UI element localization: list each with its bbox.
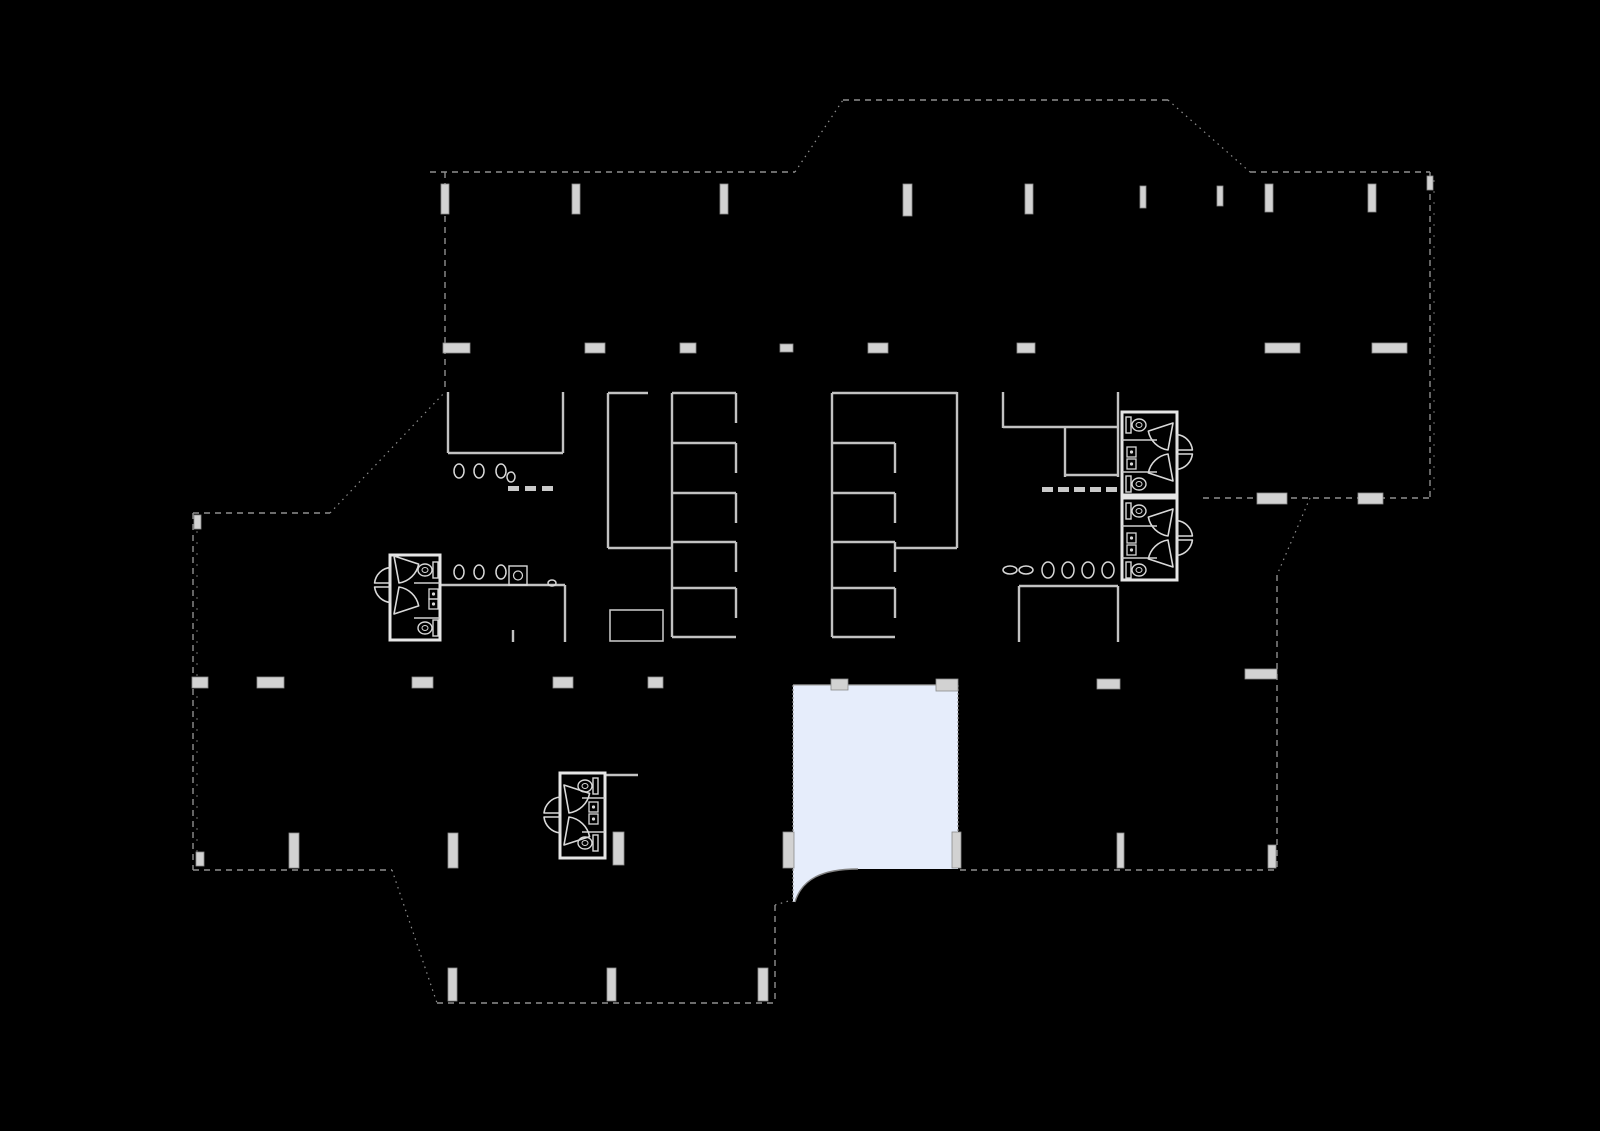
toilet-tank [433, 620, 438, 636]
toilet-bowl [1132, 478, 1146, 490]
toilet-tank [1126, 562, 1131, 578]
toilet-icon [1126, 503, 1146, 519]
urinal-icon [1042, 562, 1054, 578]
counter-dash-mark [1074, 487, 1085, 492]
room-outline [610, 610, 663, 641]
exterior-wall-dotted [1277, 498, 1310, 575]
structural-column [1025, 184, 1033, 214]
urinal-icon [496, 464, 506, 478]
structural-column [572, 184, 580, 214]
door-swing-leaf [375, 568, 390, 583]
counter-dash-mark [1090, 487, 1101, 492]
urinal-icon [1062, 562, 1074, 578]
counter-dash-mark [542, 486, 553, 491]
structural-column [585, 343, 605, 353]
toilet-bowl [1132, 564, 1146, 576]
structural-column [1217, 186, 1223, 206]
structural-column [441, 184, 449, 214]
structural-column [758, 968, 768, 1001]
structural-column [196, 852, 204, 866]
structural-column [257, 677, 284, 688]
bathroom-blocks-layer [390, 412, 1177, 858]
urinal-icon [474, 464, 484, 478]
toilet-bowl [1132, 419, 1146, 431]
counter-dash-mark [1106, 487, 1117, 492]
toilet-tank [593, 835, 598, 851]
urinal-icon [454, 565, 464, 579]
structural-column [1268, 845, 1276, 868]
counter-sink-basin [509, 566, 527, 585]
urinal-icon [496, 565, 506, 579]
exterior-wall-dotted [775, 900, 792, 905]
door-swing-leaf [375, 587, 390, 602]
door-symbols-layer [375, 423, 1193, 845]
double-swing-door-icon [544, 785, 590, 845]
sink-drain [1130, 450, 1133, 453]
toilet-icon [578, 778, 598, 794]
toilet-seat [422, 626, 428, 631]
structural-column [1372, 343, 1407, 353]
structural-column [194, 515, 201, 529]
structural-column [1358, 493, 1383, 504]
structural-column [903, 184, 912, 216]
toilet-seat [582, 841, 588, 846]
toilet-tank [1126, 476, 1131, 492]
structural-column [443, 343, 470, 353]
sink-icon [1127, 545, 1136, 555]
toilet-tank [1126, 417, 1131, 433]
toilet-seat [1136, 568, 1142, 573]
door-swing-leaf [544, 797, 560, 813]
counter-dash-mark [1042, 487, 1053, 492]
exterior-wall-dotted [1168, 100, 1250, 172]
sink-icon [589, 814, 598, 824]
structural-column [1017, 343, 1035, 353]
sink-drain [432, 592, 435, 595]
structural-column [412, 677, 433, 688]
structural-column [1265, 184, 1273, 212]
structural-column [448, 833, 458, 868]
structural-column [613, 832, 624, 865]
urinal-icon [1019, 566, 1033, 574]
toilet-bowl [418, 622, 432, 634]
structural-column [952, 832, 961, 868]
sink-drain [592, 805, 595, 808]
structural-column [1257, 493, 1287, 504]
floorplan-canvas [0, 0, 1600, 1131]
toilet-tank [1126, 503, 1131, 519]
highlighted-room-layer [793, 685, 958, 902]
interior-walls-layer [440, 392, 1118, 775]
door-swing-leaf [1177, 521, 1192, 536]
sink-icon [1127, 533, 1136, 543]
door-swing-leaf [1148, 454, 1173, 481]
structural-column [1427, 176, 1433, 190]
door-swing-leaf [394, 556, 419, 583]
structural-column [1097, 679, 1120, 689]
structural-column [868, 343, 888, 353]
exterior-wall-dotted [392, 870, 437, 1003]
counter-dash-mark [1058, 487, 1069, 492]
door-swing-leaf [1177, 540, 1192, 555]
urinal-icon [1082, 562, 1094, 578]
door-swing-leaf [1177, 435, 1192, 450]
toilet-bowl [418, 564, 432, 576]
toilet-icon [418, 620, 438, 636]
highlighted-room-shape[interactable] [793, 685, 958, 902]
exterior-wall-dotted [795, 100, 843, 172]
door-swing-leaf [1148, 540, 1173, 567]
sink-drain [592, 817, 595, 820]
door-swing-leaf [1148, 423, 1173, 450]
toilet-seat [1136, 423, 1142, 428]
counter-dash-mark [508, 486, 519, 491]
toilet-icon [1126, 476, 1146, 492]
toilet-icon [1126, 417, 1146, 433]
sink-drain [1130, 536, 1133, 539]
structural-column [648, 677, 663, 688]
structural-column [783, 832, 794, 868]
structural-column [720, 184, 728, 214]
toilet-seat [1136, 482, 1142, 487]
toilet-tank [593, 778, 598, 794]
structural-column [553, 677, 573, 688]
urinal-icon [507, 472, 515, 482]
urinal-icon [1003, 566, 1017, 574]
structural-column [289, 833, 299, 868]
plumbing-fixtures-layer [418, 417, 1146, 851]
toilet-tank [433, 562, 438, 578]
sink-drain [1130, 548, 1133, 551]
door-swing-leaf [544, 817, 560, 833]
urinal-icon [1102, 562, 1114, 578]
structural-column [1140, 186, 1146, 208]
sink-icon [429, 589, 438, 599]
toilet-seat [422, 568, 428, 573]
door-swing-leaf [1177, 454, 1192, 469]
toilet-icon [418, 562, 438, 578]
structural-column [192, 677, 208, 688]
sink-drain [432, 602, 435, 605]
floorplan-svg [0, 0, 1600, 1131]
door-swing-leaf [1148, 509, 1173, 536]
urinal-icon [454, 464, 464, 478]
structural-column [936, 679, 958, 691]
structural-column [1265, 343, 1300, 353]
toilet-icon [1126, 562, 1146, 578]
structural-column [607, 968, 616, 1001]
sink-icon [1127, 459, 1136, 469]
structural-column [831, 679, 848, 690]
structural-column [1245, 669, 1277, 679]
toilet-seat [1136, 509, 1142, 514]
toilet-bowl [1132, 505, 1146, 517]
structural-column [448, 968, 457, 1001]
counter-dash-mark [525, 486, 536, 491]
sink-drain [1130, 462, 1133, 465]
structural-column [680, 343, 696, 353]
sink-icon [429, 599, 438, 609]
toilet-seat [582, 784, 588, 789]
double-swing-door-icon [375, 556, 419, 614]
urinal-icon [474, 565, 484, 579]
exterior-wall-dotted [330, 392, 445, 513]
structural-column [780, 344, 793, 352]
structural-column [1368, 184, 1376, 212]
door-swing-leaf [564, 785, 590, 813]
sink-icon [589, 802, 598, 812]
counter-sink-icon [509, 566, 527, 585]
sink-icon [1127, 447, 1136, 457]
structural-column [1117, 833, 1124, 868]
door-swing-leaf [394, 587, 419, 614]
counter-sink-bowl [514, 571, 523, 580]
